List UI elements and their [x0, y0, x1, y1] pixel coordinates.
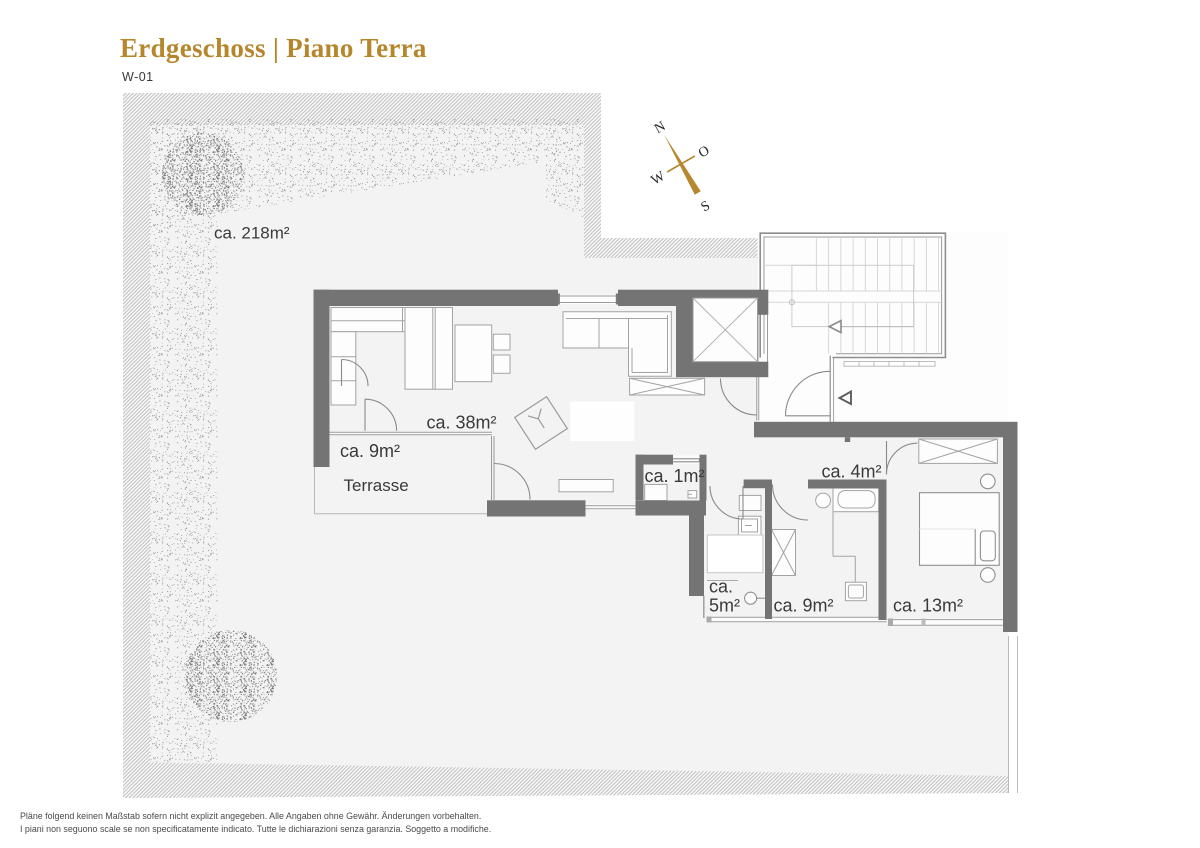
svg-text:ca. 218m²: ca. 218m²: [214, 224, 290, 243]
svg-text:5m²: 5m²: [709, 596, 740, 616]
svg-text:ca. 13m²: ca. 13m²: [893, 596, 963, 616]
svg-text:Terrasse: Terrasse: [344, 476, 409, 495]
svg-text:ca. 4m²: ca. 4m²: [822, 462, 882, 482]
svg-text:ca.: ca.: [709, 577, 733, 597]
svg-text:ca. 9m²: ca. 9m²: [774, 596, 834, 616]
svg-text:ca. 1m²: ca. 1m²: [645, 466, 705, 486]
svg-text:ca. 9m²: ca. 9m²: [340, 441, 400, 461]
svg-text:ca. 38m²: ca. 38m²: [427, 413, 497, 433]
